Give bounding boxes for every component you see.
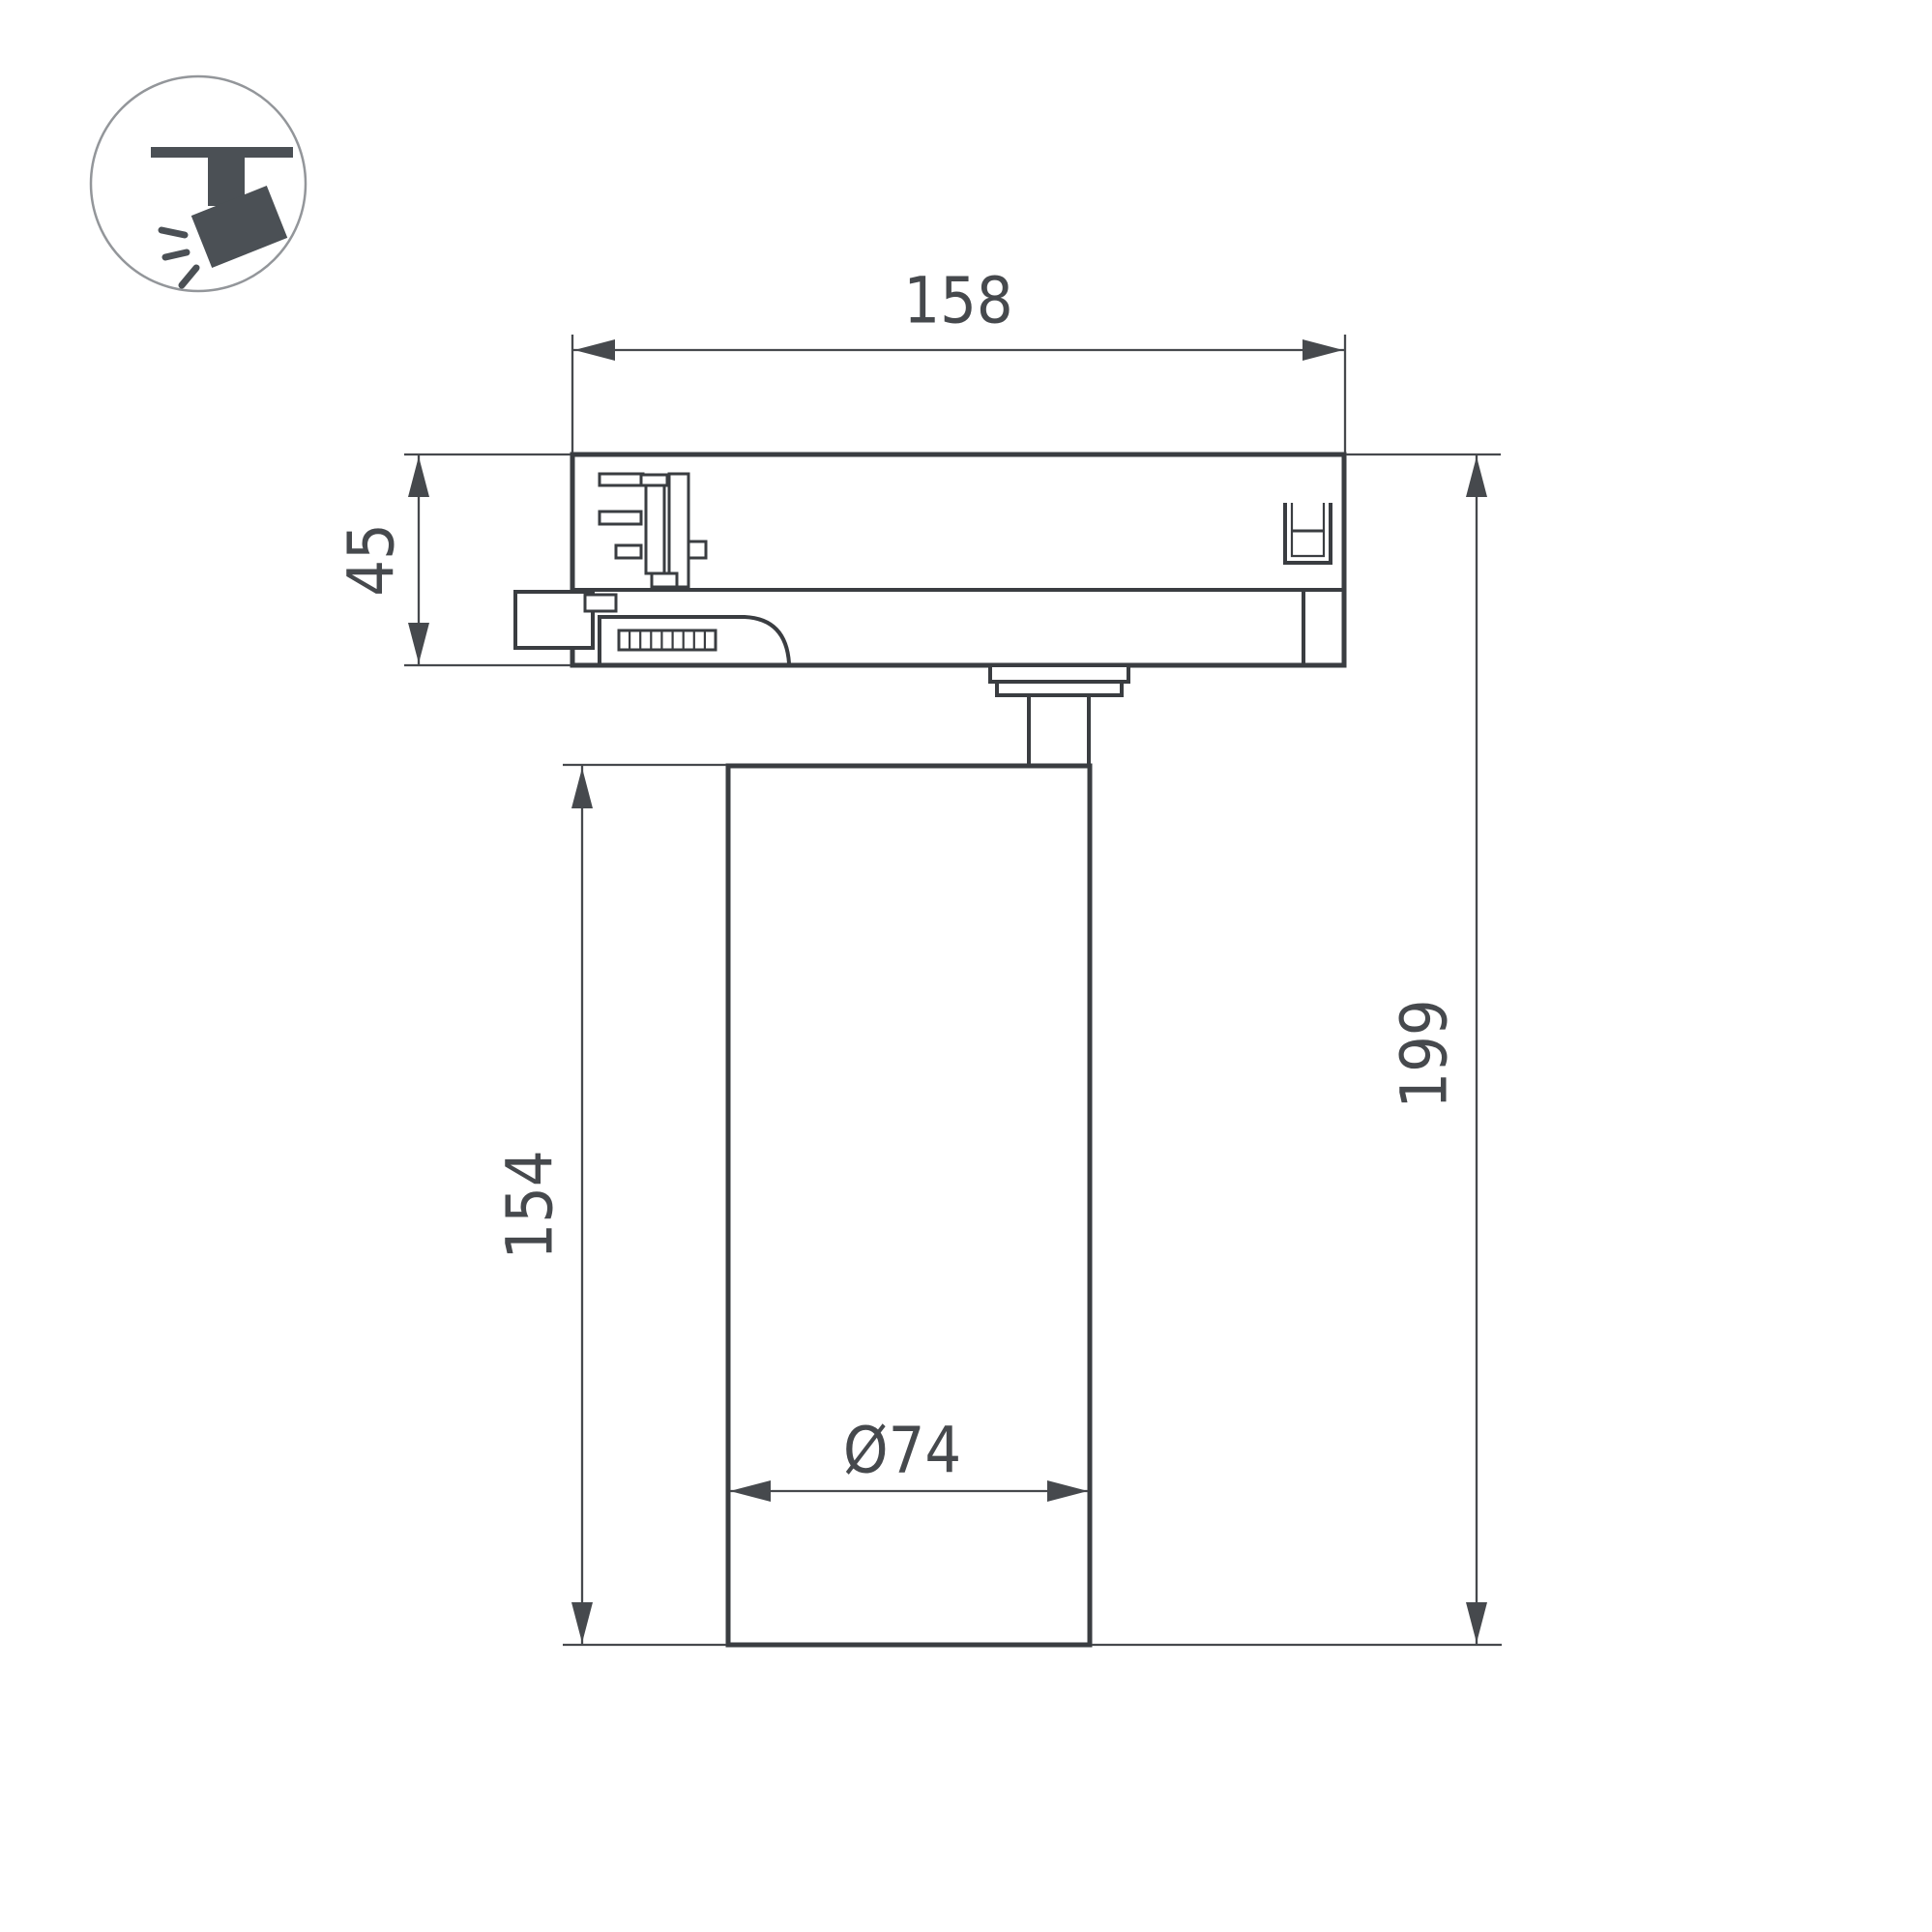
- arrowhead-top: [408, 456, 429, 497]
- track-light-icon: [91, 76, 306, 291]
- arrowhead-top: [1466, 456, 1487, 497]
- dim-label-154: 154: [493, 1150, 568, 1259]
- stem-flange-upper: [990, 665, 1128, 682]
- dim-label-158: 158: [903, 264, 1012, 338]
- dim-label-199: 199: [1388, 999, 1462, 1108]
- icon-track-bar: [151, 147, 293, 158]
- technical-drawing-page: 158 45 154 199 Ø74: [0, 0, 1932, 1932]
- arrowhead-right: [1303, 339, 1343, 361]
- dim-label-diameter: Ø74: [843, 1414, 961, 1488]
- arrowhead-bottom: [1466, 1602, 1487, 1643]
- icon-circle: [91, 76, 306, 291]
- stem-flange-lower: [997, 682, 1122, 695]
- arrowhead-bottom: [408, 623, 429, 663]
- arrowhead-left: [574, 339, 615, 361]
- dimension-body-height: 154: [493, 765, 726, 1645]
- dim-label-45: 45: [335, 523, 409, 597]
- track-adapter: [515, 454, 1344, 665]
- vent-grille: [619, 630, 716, 650]
- track-light-dimension-drawing: 158 45 154 199 Ø74: [0, 0, 1932, 1932]
- arrowhead-top: [571, 768, 593, 808]
- dimension-track-width: 158: [572, 264, 1345, 453]
- mount-stem: [990, 665, 1128, 766]
- arrowhead-bottom: [571, 1602, 593, 1643]
- lamp-body: [728, 766, 1090, 1645]
